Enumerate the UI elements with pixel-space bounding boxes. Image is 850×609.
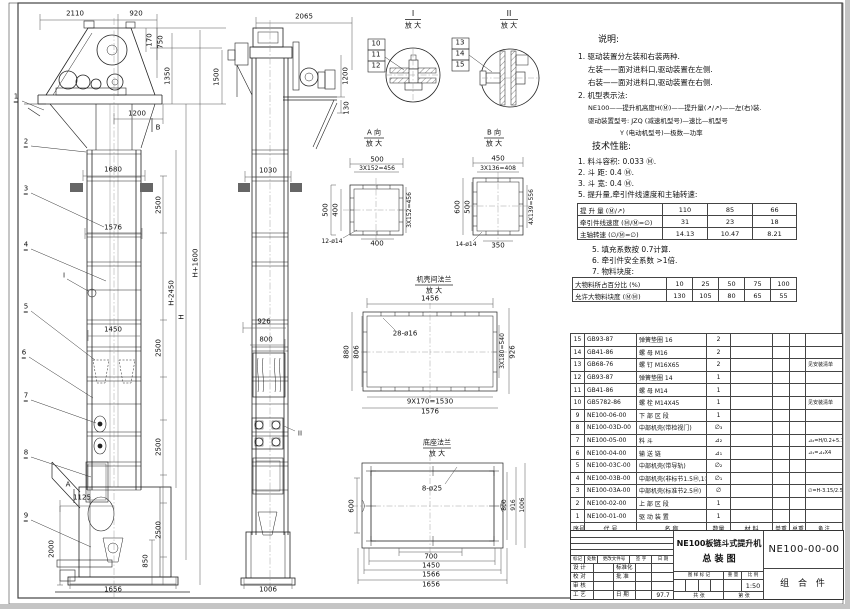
dim-label: 3X136=408 [480, 166, 516, 172]
tech-item: 1. 料斗容积: 0.033 Ⓜ. [578, 158, 656, 166]
bom-cell: 15 [571, 334, 585, 347]
dim-label: 700 [424, 554, 437, 561]
bom-cell: NE100-01-00 [585, 510, 637, 523]
bom-cell [773, 472, 790, 485]
balloon-1: 1 [14, 94, 18, 103]
bom-cell [731, 434, 773, 447]
dim-label: 12-ø14 [321, 239, 342, 245]
casing-detail-sub: 放 大 [426, 288, 442, 295]
note-line: 右装——面对进料口,驱动装置在右侧. [588, 79, 713, 87]
bom-cell [773, 409, 790, 422]
bom-cell: 中部机壳(带导轨) [637, 459, 707, 472]
bom-cell: NE100-03D-00 [585, 422, 637, 435]
bom-cell: 1 [707, 371, 731, 384]
tech-item: 3. 斗 宽: 0.4 Ⓜ. [578, 180, 634, 188]
dim-label: 9X170=1530 [407, 399, 453, 406]
page-edge [0, 604, 850, 609]
table-cell: 50 [719, 278, 745, 290]
bom-cell [731, 497, 773, 510]
balloon-2: 2 [24, 139, 28, 148]
bom-cell: 1 [571, 510, 585, 523]
bom-row: 13GB68-76螺 钉 M16X652见安装清单 [571, 359, 843, 372]
balloon-13: 13 [456, 40, 465, 47]
dim-label: 916 [511, 499, 517, 510]
drawing-code: NE100-00-00 [763, 531, 844, 568]
bom-row: 12GB93-87弹簧垫圈 141 [571, 371, 843, 384]
bom-row: 7NE100-05-00料 斗⊿₂⊿₂=H/0.2+5.75 [571, 434, 843, 447]
bom-cell: GB93-87 [585, 334, 637, 347]
detail-b-title: B 向 [487, 130, 501, 137]
dim-label: 1680 [104, 167, 122, 174]
bom-cell [806, 409, 843, 422]
bom-cell [790, 422, 806, 435]
bom-cell [790, 447, 806, 460]
bom-cell: 驱 动 装 置 [637, 510, 707, 523]
bom-cell [731, 396, 773, 409]
table-cell: 65 [745, 290, 771, 302]
dim-label: 1200 [128, 111, 146, 118]
bom-cell: 螺 栓 M14X45 [637, 396, 707, 409]
tech-note: 5. 填充系数按 0.7计算. [592, 246, 671, 254]
bom-cell: 1 [707, 409, 731, 422]
bom-cell: 8 [571, 422, 585, 435]
title-block: 标记 处数 更改文件号 签 字 日 期 设 计 标准化 校 对 批 准 审 核 … [570, 530, 844, 600]
dim-label: 2500 [156, 521, 163, 539]
table-cell: 105 [693, 290, 719, 302]
bom-cell [773, 510, 790, 523]
dim-label: 350 [491, 243, 504, 250]
bom-cell: 输 送 链 [637, 447, 707, 460]
table-cell: 80 [719, 290, 745, 302]
bom-cell [731, 447, 773, 460]
table-cell: 66 [753, 204, 797, 216]
dim-label: 1576 [421, 409, 439, 416]
bom-cell [731, 510, 773, 523]
bom-cell: 13 [571, 359, 585, 372]
titleblock-date: 97.7 [651, 590, 674, 600]
bom-cell [790, 396, 806, 409]
bom-cell [731, 472, 773, 485]
bom-cell [731, 409, 773, 422]
bom-cell: ∅₁ [707, 472, 731, 485]
bom-cell [806, 334, 843, 347]
dim-label: 800 [259, 337, 272, 344]
side-view-geometry [228, 20, 337, 592]
speed-table: 提 升 量 (Ⓜ/↗) 110 85 66 牵引件线速度 (Ⓜ/Ⓜ=∅) 31 … [577, 203, 797, 240]
dim-label: 4X139=556 [529, 189, 535, 225]
bom-cell [790, 346, 806, 359]
dim-label: 2110 [66, 11, 84, 18]
bom-cell: 9 [571, 409, 585, 422]
bom-cell: 2 [707, 359, 731, 372]
dim-label: 28-ø16 [393, 331, 418, 338]
bom-row: 2NE100-02-00上 部 区 段1 [571, 497, 843, 510]
detail-a-geometry [331, 138, 410, 242]
detail-i-sub: 放 大 [405, 23, 421, 30]
bom-cell: GB41-86 [585, 346, 637, 359]
dim-label: 1500 [214, 68, 221, 86]
bom-cell: 3 [571, 485, 585, 498]
bom-cell [790, 334, 806, 347]
bom-cell: NE100-06-00 [585, 409, 637, 422]
front-view-geometry [24, 18, 190, 598]
casing-detail-title: 机壳间法兰 [417, 277, 452, 284]
bom-cell: 5 [571, 459, 585, 472]
table-cell: 10 [667, 278, 693, 290]
detail-a-title: A 向 [367, 130, 381, 137]
bom-cell [790, 359, 806, 372]
bom-cell: NE100-03B-00 [585, 472, 637, 485]
bom-cell [806, 371, 843, 384]
bom-cell: 料 斗 [637, 434, 707, 447]
bom-cell [773, 334, 790, 347]
detail-ii-title: II [507, 10, 512, 18]
bom-row: 14GB41-86螺 母 M162 [571, 346, 843, 359]
table-cell: 主轴转速 (∅/Ⓜ=∅) [578, 228, 663, 240]
notes-heading: 说明: [598, 36, 619, 45]
bom-row: 3NE100-03A-00中部机壳(标准节2.5Ⓜ)∅∅=H-3.15/2.5 [571, 485, 843, 498]
marker-i: I [63, 273, 65, 280]
table-cell: 允许大物料块度 (ⓂⓂ) [573, 290, 667, 302]
base-detail-title: 底座法兰 [423, 440, 451, 447]
bom-cell [731, 384, 773, 397]
bom-cell: 14 [571, 346, 585, 359]
dim-label: 1450 [422, 563, 440, 570]
bom-cell: 1 [707, 384, 731, 397]
dim-label: 1576 [104, 225, 122, 232]
marker-ii: II [298, 431, 302, 438]
dim-label: 1006 [520, 497, 526, 512]
bom-cell: 中部机壳(非标节1.5Ⓜ,1Ⓜ) [637, 472, 707, 485]
dim-label: 500 [370, 157, 383, 164]
bom-cell: GB41-86 [585, 384, 637, 397]
table-cell: 31 [663, 216, 708, 228]
bom-cell [731, 371, 773, 384]
dim-label: 3X152=456 [359, 166, 395, 172]
drawing-subtitle: 总 装 图 [702, 556, 735, 565]
bom-row: 15GB93-87弹簧垫圈 162 [571, 334, 843, 347]
balloon-4: 4 [24, 242, 28, 251]
bom-cell: ⊿₂=H/0.2+5.75 [806, 434, 843, 447]
bom-cell [773, 485, 790, 498]
bom-cell: 螺 钉 M16X65 [637, 359, 707, 372]
casing-flange-geometry [352, 285, 509, 408]
balloon-15: 15 [456, 62, 465, 69]
table-cell: 提 升 量 (Ⓜ/↗) [578, 204, 663, 216]
table-cell: 大物料所占百分比 (%) [573, 278, 667, 290]
dim-label: H+1600 [193, 249, 200, 278]
detail-i-title: I [412, 10, 414, 18]
balloon-5: 5 [24, 304, 28, 313]
bom-row: 10GB5782-86螺 栓 M14X451见安装清单 [571, 396, 843, 409]
table-cell: 23 [708, 216, 753, 228]
dim-label: 800 [502, 499, 508, 510]
dim-label: 400 [370, 241, 383, 248]
bom-row: 9NE100-06-00下 部 区 段1 [571, 409, 843, 422]
bom-cell: 12 [571, 371, 585, 384]
bom-cell [731, 346, 773, 359]
bom-cell [806, 422, 843, 435]
bom-cell: 4 [571, 472, 585, 485]
dim-label: 1566 [422, 572, 440, 579]
bom-cell: GB93-87 [585, 371, 637, 384]
dim-label: 500 [465, 200, 472, 213]
balloon-10: 10 [372, 41, 381, 48]
bom-row: 6NE100-04-00输 送 链⊿₁⊿₁=⊿₂X4 [571, 447, 843, 460]
balloon-8: 8 [24, 450, 28, 459]
balloon-11: 11 [372, 52, 381, 59]
page-edge [845, 0, 850, 609]
tech-heading: 技术性能: [592, 143, 631, 152]
bom-cell [731, 459, 773, 472]
tech-item: 5. 提升量,牵引件线速度和主轴转速: [578, 191, 697, 199]
detail-a-sub: 放 大 [366, 141, 382, 148]
dim-label: 3X180=540 [500, 333, 506, 369]
bom-cell [773, 422, 790, 435]
table-cell: 100 [771, 278, 797, 290]
dim-label: 920 [129, 11, 142, 18]
bom-cell: ∅₂ [707, 459, 731, 472]
dim-label: 880 [344, 345, 351, 358]
bom-cell: 弹簧垫圈 14 [637, 371, 707, 384]
bom-cell: 6 [571, 447, 585, 460]
bom-cell: 2 [707, 346, 731, 359]
table-cell: 110 [663, 204, 708, 216]
bom-cell [773, 346, 790, 359]
bom-cell: GB5782-86 [585, 396, 637, 409]
detail-b-sub: 放 大 [486, 141, 502, 148]
balloon-6: 6 [22, 350, 26, 359]
bom-cell [790, 434, 806, 447]
side-dim-lines [243, 17, 352, 589]
bom-cell [773, 447, 790, 460]
bom-cell: 1 [707, 510, 731, 523]
bom-cell: 10 [571, 396, 585, 409]
dim-label: 600 [455, 200, 462, 213]
bom-cell [806, 510, 843, 523]
bom-cell: 2 [707, 334, 731, 347]
dim-label: 2500 [156, 196, 163, 214]
bom-row: 11GB41-86螺 母 M141 [571, 384, 843, 397]
bom-cell [773, 359, 790, 372]
dim-label: H [179, 314, 186, 319]
detail-ii-sub: 放 大 [501, 23, 517, 30]
dim-label: 806 [354, 345, 361, 358]
bom-cell [806, 384, 843, 397]
note-formula: NE100——提升机高度H(Ⓜ)——提升量(↗/↗)——左(右)装. [588, 105, 762, 112]
balloon-3: 3 [24, 186, 28, 195]
bom-row: 5NE100-03C-00中部机壳(带导轨)∅₂ [571, 459, 843, 472]
bom-cell: NE100-04-00 [585, 447, 637, 460]
dim-label: H-2450 [169, 280, 176, 306]
note-formula: Y (电动机型号)—极数—功率 [620, 130, 703, 137]
bom-cell: ∅=H-3.15/2.5 [806, 485, 843, 498]
bom-cell: NE100-05-00 [585, 434, 637, 447]
dim-label: 2500 [156, 339, 163, 357]
bom-cell: 7 [571, 434, 585, 447]
bom-cell [773, 371, 790, 384]
bom-cell: NE100-03C-00 [585, 459, 637, 472]
bom-cell: 1 [707, 396, 731, 409]
bom-row: 1NE100-01-00驱 动 装 置1 [571, 510, 843, 523]
bom-table: 15GB93-87弹簧垫圈 16214GB41-86螺 母 M16213GB68… [570, 333, 843, 536]
dim-label: 850 [143, 554, 150, 567]
dim-label: 400 [333, 203, 340, 216]
bom-cell [806, 459, 843, 472]
sheet-count: 共 张 [673, 591, 724, 600]
detail-ii-geometry [452, 20, 540, 108]
bom-cell [790, 459, 806, 472]
dim-label: 1200 [343, 67, 350, 85]
bom-cell [731, 359, 773, 372]
dim-label: 926 [257, 319, 270, 326]
tech-item: 2. 斗 距: 0.4 Ⓜ. [578, 169, 634, 177]
bom-cell [773, 434, 790, 447]
table-cell: 55 [771, 290, 797, 302]
sheet-number: 第 张 [723, 591, 764, 600]
bom-cell [773, 396, 790, 409]
bom-cell [731, 485, 773, 498]
dim-label: 1450 [104, 327, 122, 334]
balloon-12: 12 [372, 63, 381, 70]
bom-cell [773, 384, 790, 397]
bom-cell [731, 334, 773, 347]
bom-cell [790, 384, 806, 397]
dim-label: 1125 [73, 495, 91, 502]
bom-cell [790, 472, 806, 485]
dim-label: 600 [349, 499, 356, 512]
dim-label: 1030 [259, 168, 277, 175]
balloon-14: 14 [456, 51, 465, 58]
bom-cell [790, 371, 806, 384]
dim-label: 1456 [421, 296, 439, 303]
note-line: 1. 驱动装置分左装和右装两种. [578, 53, 680, 61]
bom-cell: 11 [571, 384, 585, 397]
dim-label: 14-ø14 [455, 242, 476, 248]
note-line: 2. 机型表示法: [578, 92, 628, 100]
bom-cell: 上 部 区 段 [637, 497, 707, 510]
lump-size-table: 大物料所占百分比 (%) 10 25 50 75 100 允许大物料块度 (ⓂⓂ… [572, 277, 797, 302]
dim-label: 8-ø25 [422, 486, 442, 493]
bom-cell: 弹簧垫圈 16 [637, 334, 707, 347]
bom-cell [790, 497, 806, 510]
bom-cell: 1 [707, 497, 731, 510]
bom-cell [806, 346, 843, 359]
bom-cell: 2 [571, 497, 585, 510]
bom-cell: 螺 母 M16 [637, 346, 707, 359]
marker-a: A [66, 482, 71, 489]
dim-label: 2065 [295, 14, 313, 21]
note-line: 左装——面对进料口,驱动装置在左侧. [588, 66, 713, 74]
dim-label: 130 [344, 101, 351, 114]
dim-label: 1656 [422, 582, 440, 589]
note-formula: 驱动装置型号: JZQ (减速机型号)—速比—机型号 [588, 118, 728, 125]
bom-cell [773, 497, 790, 510]
table-cell: 18 [753, 216, 797, 228]
tech-note: 7. 物料块度: [592, 268, 634, 276]
bom-cell: 见安装清单 [806, 359, 843, 372]
bom-cell: ∅₃ [707, 422, 731, 435]
marker-b: B [156, 125, 161, 132]
dim-label: 2000 [49, 540, 56, 558]
dim-label: 500 [323, 203, 330, 216]
bom-cell: ∅ [707, 485, 731, 498]
tech-note: 6. 牵引件安全系数 >1倍. [592, 257, 677, 265]
bom-cell [790, 510, 806, 523]
dim-label: 750 [158, 35, 165, 48]
engineering-drawing-sheet: 2110 920 170 750 1350 1500 1200 1680 157… [0, 0, 850, 609]
base-detail-sub: 放 大 [429, 451, 445, 458]
dim-label: 3X152=456 [407, 192, 413, 228]
bom-cell: 中部机壳(标准节2.5Ⓜ) [637, 485, 707, 498]
dim-label: 1656 [104, 587, 122, 594]
titleblock-label: 工 艺 [571, 590, 595, 600]
table-cell: 75 [745, 278, 771, 290]
dim-label: 1006 [259, 587, 277, 594]
bom-cell: 下 部 区 段 [637, 409, 707, 422]
bom-cell: ⊿₁ [707, 447, 731, 460]
front-dim-lines [40, 14, 226, 589]
table-cell: 牵引件线速度 (Ⓜ/Ⓜ=∅) [578, 216, 663, 228]
bom-cell [773, 459, 790, 472]
bom-cell: NE100-03A-00 [585, 485, 637, 498]
table-cell: 8.21 [753, 228, 797, 240]
dim-label: 926 [510, 345, 517, 358]
bom-cell: 螺 母 M14 [637, 384, 707, 397]
table-cell: 25 [693, 278, 719, 290]
dim-label: 170 [147, 33, 154, 46]
bom-cell [806, 497, 843, 510]
bom-cell: NE100-02-00 [585, 497, 637, 510]
table-cell: 130 [667, 290, 693, 302]
dim-label: 1350 [165, 67, 172, 85]
bom-cell: 中部机壳(带检视门) [637, 422, 707, 435]
balloon-9: 9 [24, 513, 28, 522]
bom-cell [790, 409, 806, 422]
dim-label: 2500 [156, 438, 163, 456]
dim-label: 450 [491, 156, 504, 163]
bom-cell: GB68-76 [585, 359, 637, 372]
bom-cell [806, 472, 843, 485]
bom-cell: 见安装清单 [806, 396, 843, 409]
balloon-7: 7 [24, 393, 28, 402]
table-cell: 10.47 [708, 228, 753, 240]
bom-row: 8NE100-03D-00中部机壳(带检视门)∅₃ [571, 422, 843, 435]
bom-cell [731, 422, 773, 435]
bom-row: 4NE100-03B-00中部机壳(非标节1.5Ⓜ,1Ⓜ)∅₁ [571, 472, 843, 485]
bom-cell: ⊿₂ [707, 434, 731, 447]
drawing-title: NE100板链斗式提升机 [677, 540, 762, 548]
table-cell: 85 [708, 204, 753, 216]
bom-cell: ⊿₁=⊿₂X4 [806, 447, 843, 460]
part-type: 组 合 件 [763, 568, 844, 600]
table-cell: 14.13 [663, 228, 708, 240]
bom-cell [790, 485, 806, 498]
